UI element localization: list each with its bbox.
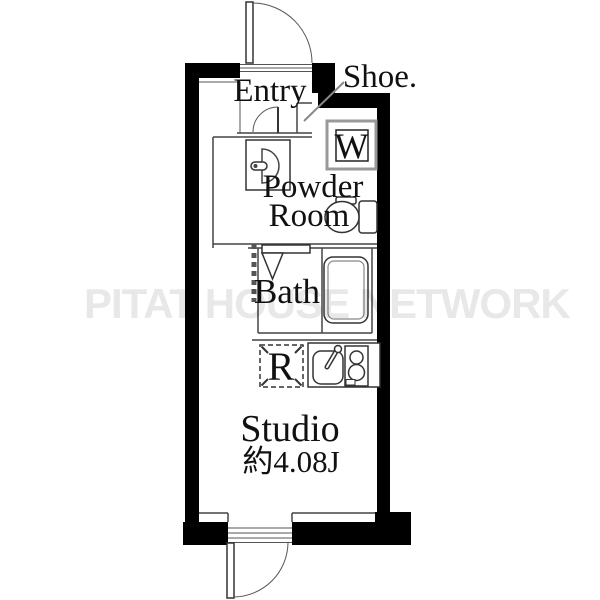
fridge-label: R bbox=[268, 344, 295, 389]
entry-label: Entry bbox=[233, 73, 307, 109]
floor-plan: Entry Shoe. W Powder Room Bath R Studio … bbox=[0, 0, 600, 600]
wall-right bbox=[377, 100, 390, 545]
wall-top bbox=[185, 63, 240, 78]
balcony-door bbox=[227, 543, 288, 598]
powder-room-door bbox=[253, 107, 278, 133]
bathtub-icon bbox=[324, 257, 368, 323]
wall-left bbox=[185, 63, 199, 545]
bath-label: Bath bbox=[254, 272, 321, 311]
entry-door-leaf bbox=[246, 2, 253, 63]
entry-door-arc bbox=[253, 3, 312, 63]
wall-bottom-left bbox=[183, 522, 228, 545]
balcony-door-leaf bbox=[227, 543, 234, 598]
stove-icon bbox=[345, 346, 368, 386]
entry-door bbox=[246, 2, 312, 63]
floor-plan-svg: Entry Shoe. W Powder Room Bath R Studio … bbox=[0, 0, 600, 600]
wall-entry-post bbox=[312, 63, 335, 93]
washer-label: W bbox=[335, 126, 369, 166]
toilet-tank bbox=[359, 201, 377, 233]
studio-area-label: 約4.08J bbox=[242, 444, 339, 479]
wall-bottom-right bbox=[292, 522, 411, 545]
stove-burner-bottom bbox=[349, 365, 365, 381]
stove-burner-top bbox=[350, 351, 363, 364]
stove-grill bbox=[346, 380, 355, 386]
balcony-threshold bbox=[228, 528, 292, 543]
genkan-step-line bbox=[213, 133, 312, 137]
powder-room-label-line2: Room bbox=[269, 198, 350, 234]
balcony-door-arc bbox=[234, 543, 288, 597]
powder-door-arc bbox=[253, 107, 278, 132]
bottom-step-lines bbox=[199, 513, 375, 522]
shoe-label: Shoe. bbox=[343, 59, 417, 95]
entry-threshold bbox=[240, 65, 312, 72]
